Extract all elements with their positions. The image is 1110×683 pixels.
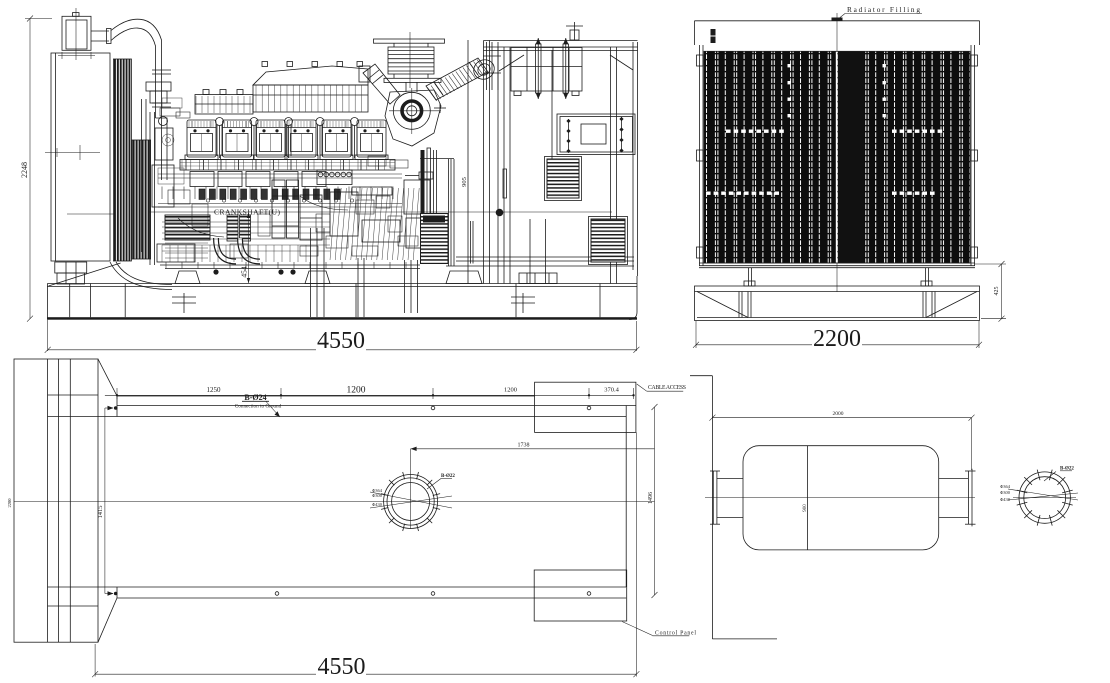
svg-text:B-Ø24: B-Ø24 bbox=[244, 393, 266, 402]
svg-text:Φ430: Φ430 bbox=[1000, 497, 1011, 502]
svg-text:4550: 4550 bbox=[317, 328, 365, 354]
svg-text:1200: 1200 bbox=[504, 387, 517, 394]
svg-text:2200: 2200 bbox=[7, 498, 12, 508]
svg-text:Φ430: Φ430 bbox=[372, 502, 383, 507]
svg-text:4550: 4550 bbox=[318, 654, 366, 680]
svg-text:CABLE ACCESS: CABLE ACCESS bbox=[648, 385, 686, 391]
svg-text:Connection to Ground: Connection to Ground bbox=[235, 404, 282, 410]
svg-text:Φ300: Φ300 bbox=[372, 493, 383, 498]
svg-text:1415: 1415 bbox=[97, 506, 104, 519]
svg-text:370.4: 370.4 bbox=[604, 387, 619, 394]
svg-text:2248: 2248 bbox=[20, 162, 29, 178]
svg-text:900: 900 bbox=[803, 504, 808, 512]
svg-text:Φ364: Φ364 bbox=[1000, 484, 1011, 489]
svg-text:1496: 1496 bbox=[648, 492, 654, 504]
svg-text:454: 454 bbox=[240, 266, 249, 278]
svg-text:1200: 1200 bbox=[347, 386, 366, 396]
svg-text:2200: 2200 bbox=[813, 326, 861, 352]
svg-text:905: 905 bbox=[461, 177, 468, 187]
svg-text:425: 425 bbox=[994, 287, 1000, 296]
svg-text:Φ300: Φ300 bbox=[1000, 490, 1011, 495]
svg-text:2000: 2000 bbox=[833, 411, 844, 417]
svg-text:Control Panel: Control Panel bbox=[655, 631, 696, 637]
svg-text:1738: 1738 bbox=[518, 443, 530, 449]
svg-text:1250: 1250 bbox=[207, 386, 222, 394]
